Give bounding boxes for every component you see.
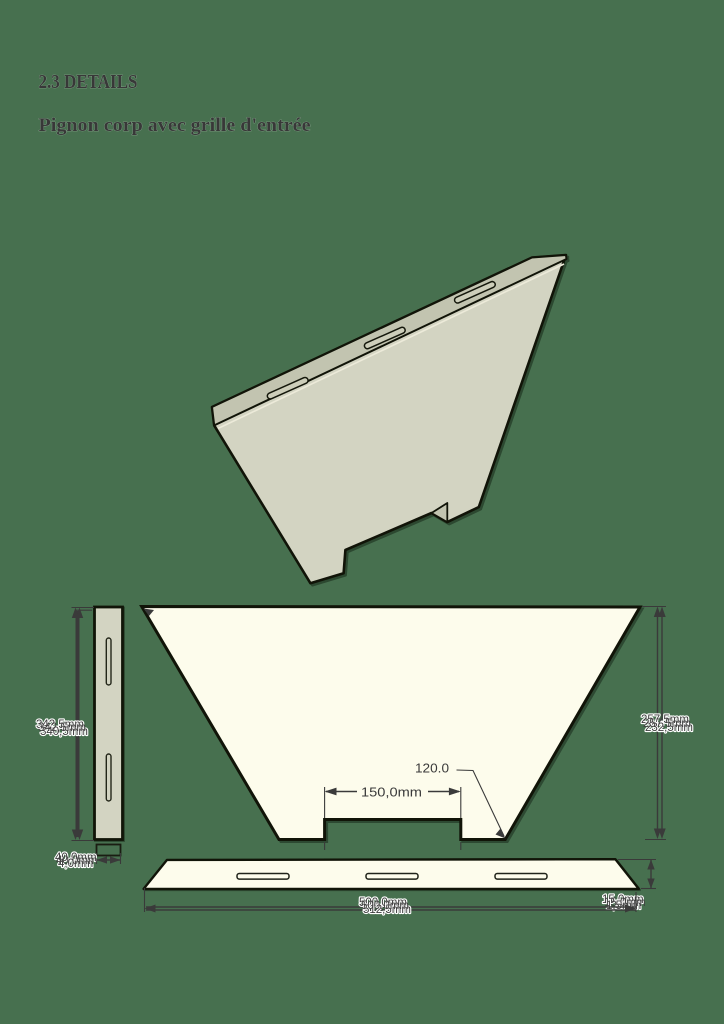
svg-text:342,5mm: 342,5mm <box>38 722 86 734</box>
svg-text:500,0mm: 500,0mm <box>361 900 409 912</box>
svg-text:120.0: 120.0 <box>415 762 449 776</box>
svg-text:Pignon corp avec grille d'entr: Pignon corp avec grille d'entrée <box>39 115 311 136</box>
svg-text:257,5mm: 257,5mm <box>643 718 691 730</box>
svg-text:2.3 DETAILS: 2.3 DETAILS <box>39 71 138 93</box>
svg-text:40,0mm: 40,0mm <box>56 855 98 867</box>
svg-text:150,0mm: 150,0mm <box>361 786 422 800</box>
